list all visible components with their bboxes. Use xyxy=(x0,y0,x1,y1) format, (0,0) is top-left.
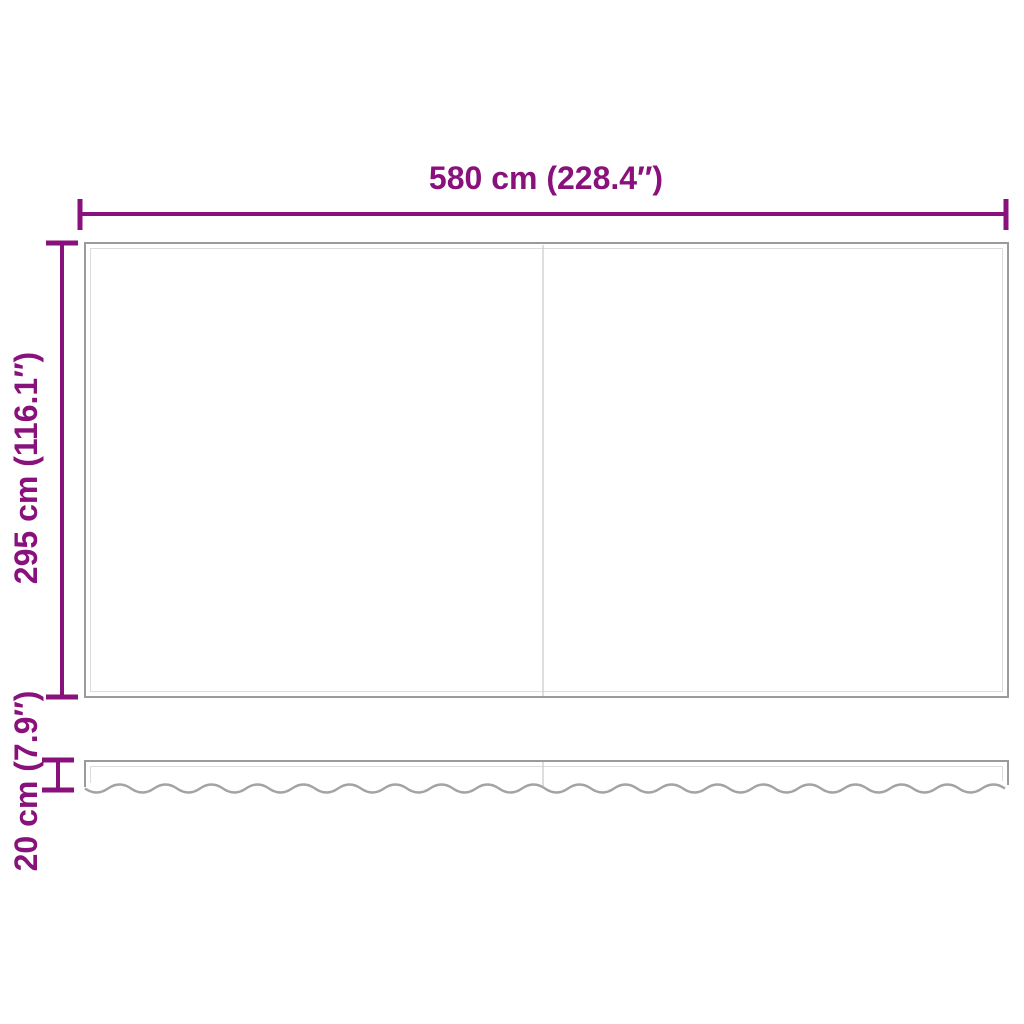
valance-inner-edge xyxy=(91,767,1003,784)
dimension-diagram: 580 cm (228.4″) 295 cm (116.1″) 20 cm (7… xyxy=(0,0,1024,1024)
valance-wave-edge xyxy=(85,785,1005,793)
width-dimension-label: 580 cm (228.4″) xyxy=(286,158,806,198)
valance-panel-outline xyxy=(85,761,1008,787)
main-fabric-panel xyxy=(85,243,1008,697)
height-dimension-line xyxy=(46,243,78,698)
valance-dimension-line xyxy=(42,760,74,790)
valance-dimension-label: 20 cm (7.9″) xyxy=(6,631,46,931)
width-dimension-line xyxy=(80,199,1006,230)
diagram-graphics xyxy=(0,0,1024,1024)
